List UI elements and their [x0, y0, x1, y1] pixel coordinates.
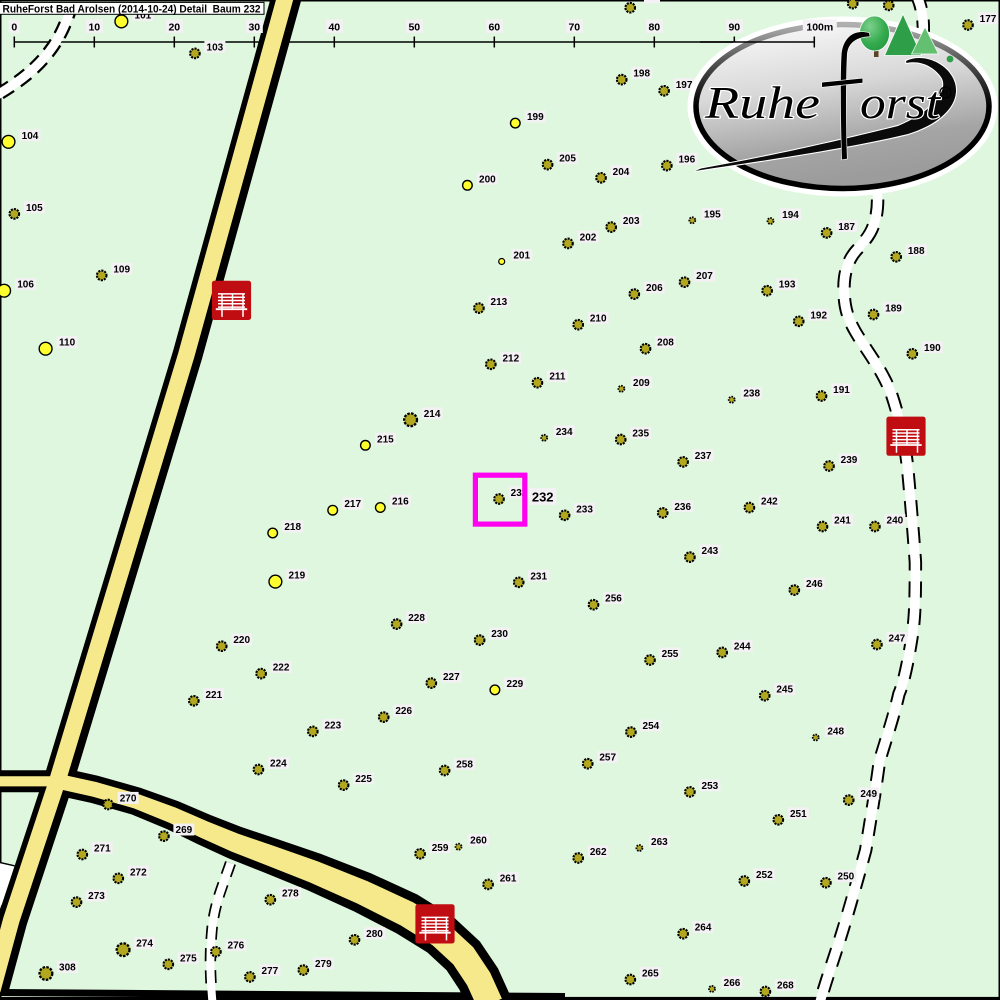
svg-text:70: 70	[568, 21, 580, 33]
svg-text:194: 194	[782, 210, 799, 221]
svg-text:275: 275	[180, 953, 197, 964]
svg-text:211: 211	[549, 372, 566, 383]
svg-text:245: 245	[776, 685, 793, 696]
svg-text:205: 205	[559, 154, 576, 165]
svg-text:258: 258	[456, 760, 473, 771]
svg-text:253: 253	[702, 781, 719, 792]
svg-text:270: 270	[120, 794, 137, 805]
svg-text:238: 238	[743, 389, 760, 400]
svg-text:279: 279	[315, 959, 332, 970]
svg-text:266: 266	[724, 978, 741, 989]
svg-text:220: 220	[233, 635, 250, 646]
svg-text:233: 233	[576, 504, 593, 515]
svg-text:202: 202	[580, 232, 597, 243]
svg-text:10: 10	[88, 21, 100, 33]
svg-text:196: 196	[678, 155, 695, 166]
svg-text:109: 109	[113, 264, 130, 275]
svg-text:271: 271	[94, 844, 111, 855]
svg-text:189: 189	[885, 304, 902, 315]
svg-text:231: 231	[530, 571, 547, 582]
svg-text:224: 224	[270, 759, 287, 770]
svg-text:260: 260	[470, 836, 487, 847]
svg-text:198: 198	[633, 69, 650, 80]
svg-text:244: 244	[734, 641, 751, 652]
svg-text:250: 250	[838, 872, 855, 883]
svg-text:232: 232	[532, 489, 554, 504]
svg-text:274: 274	[136, 939, 153, 950]
svg-text:277: 277	[262, 966, 279, 977]
svg-text:241: 241	[834, 516, 851, 527]
svg-text:192: 192	[810, 310, 827, 321]
svg-text:234: 234	[556, 427, 573, 438]
svg-text:40: 40	[328, 21, 340, 33]
svg-text:264: 264	[695, 923, 712, 934]
svg-text:209: 209	[633, 378, 650, 389]
svg-text:203: 203	[623, 216, 640, 227]
svg-text:100m: 100m	[806, 21, 833, 33]
svg-text:50: 50	[408, 21, 420, 33]
svg-text:104: 104	[22, 131, 39, 142]
svg-text:252: 252	[756, 870, 773, 881]
svg-text:259: 259	[432, 843, 449, 854]
svg-text:263: 263	[651, 837, 668, 848]
svg-text:RuheForst Bad Arolsen (2014-10: RuheForst Bad Arolsen (2014-10-24) Detai…	[3, 3, 261, 15]
svg-text:255: 255	[662, 649, 679, 660]
svg-text:R: R	[942, 88, 948, 98]
svg-text:106: 106	[17, 280, 34, 291]
svg-text:228: 228	[408, 613, 425, 624]
svg-text:204: 204	[613, 167, 630, 178]
svg-text:242: 242	[761, 497, 778, 508]
svg-text:243: 243	[702, 546, 719, 557]
svg-text:276: 276	[228, 941, 245, 952]
svg-text:227: 227	[443, 672, 460, 683]
svg-text:orst: orst	[860, 77, 941, 128]
svg-text:103: 103	[207, 42, 224, 53]
svg-text:236: 236	[674, 502, 691, 513]
svg-text:190: 190	[924, 343, 941, 354]
svg-text:212: 212	[502, 353, 519, 364]
svg-text:239: 239	[841, 455, 858, 466]
svg-text:223: 223	[324, 720, 341, 731]
svg-text:219: 219	[289, 571, 306, 582]
svg-text:Ruhe: Ruhe	[704, 77, 820, 128]
svg-text:240: 240	[887, 516, 904, 527]
svg-text:208: 208	[657, 338, 674, 349]
svg-text:187: 187	[838, 222, 855, 233]
svg-text:222: 222	[273, 663, 290, 674]
svg-text:199: 199	[527, 112, 544, 123]
svg-text:110: 110	[59, 338, 76, 349]
svg-text:90: 90	[728, 21, 740, 33]
svg-text:60: 60	[488, 21, 500, 33]
svg-text:261: 261	[500, 873, 517, 884]
svg-text:246: 246	[806, 579, 823, 590]
svg-text:201: 201	[513, 251, 530, 262]
svg-text:195: 195	[704, 209, 721, 220]
svg-text:226: 226	[395, 706, 412, 717]
svg-text:193: 193	[779, 280, 796, 291]
svg-text:30: 30	[248, 21, 260, 33]
svg-text:20: 20	[168, 21, 180, 33]
svg-text:216: 216	[392, 497, 409, 508]
svg-text:269: 269	[176, 825, 193, 836]
svg-text:207: 207	[696, 271, 713, 282]
svg-text:213: 213	[491, 297, 508, 308]
svg-text:254: 254	[643, 721, 660, 732]
svg-text:278: 278	[282, 889, 299, 900]
svg-text:177: 177	[980, 14, 997, 25]
svg-text:308: 308	[59, 963, 76, 974]
svg-text:214: 214	[424, 409, 441, 420]
svg-text:265: 265	[642, 969, 659, 980]
svg-text:188: 188	[908, 246, 925, 257]
svg-text:218: 218	[284, 522, 301, 533]
svg-text:210: 210	[590, 314, 607, 325]
svg-text:262: 262	[590, 847, 607, 858]
svg-text:257: 257	[599, 753, 616, 764]
svg-text:215: 215	[377, 434, 394, 445]
svg-text:191: 191	[833, 385, 850, 396]
svg-text:80: 80	[648, 21, 660, 33]
svg-text:197: 197	[676, 80, 693, 91]
svg-text:247: 247	[889, 634, 906, 645]
svg-text:0: 0	[11, 21, 17, 33]
svg-text:280: 280	[366, 929, 383, 940]
svg-text:217: 217	[344, 499, 361, 510]
svg-text:273: 273	[88, 891, 105, 902]
svg-text:268: 268	[777, 981, 794, 992]
svg-text:206: 206	[646, 283, 663, 294]
svg-text:229: 229	[507, 679, 524, 690]
svg-text:225: 225	[355, 774, 372, 785]
svg-text:200: 200	[479, 174, 496, 185]
svg-text:237: 237	[695, 451, 712, 462]
svg-text:105: 105	[26, 203, 43, 214]
svg-text:251: 251	[790, 809, 807, 820]
svg-text:249: 249	[860, 789, 877, 800]
svg-text:272: 272	[130, 867, 147, 878]
svg-text:221: 221	[205, 690, 222, 701]
svg-text:256: 256	[605, 594, 622, 605]
svg-text:235: 235	[632, 429, 649, 440]
svg-text:230: 230	[491, 629, 508, 640]
svg-text:248: 248	[827, 727, 844, 738]
